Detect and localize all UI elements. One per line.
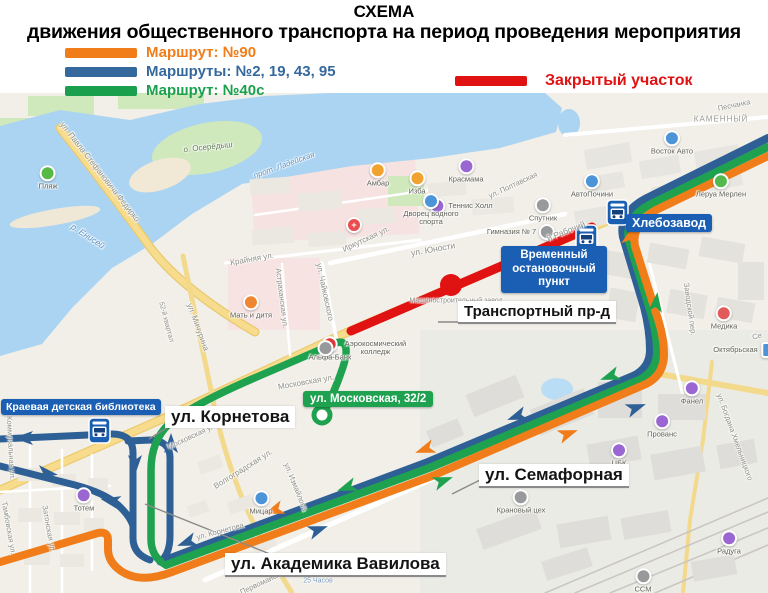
callout-temp-stop-line3: пункт — [503, 276, 605, 290]
callout-moskovskaya: ул. Московская, 32/2 — [303, 391, 433, 407]
legend-label-route-40c: Маршрут: №40с — [146, 82, 264, 99]
bus-stop-icon-hlebozavod — [607, 200, 628, 225]
page-title: СХЕМА — [0, 2, 768, 22]
bus-stop-icon-library — [89, 418, 110, 443]
callout-vavilova: ул. Академика Вавилова — [225, 553, 446, 577]
legend-routes: Маршрут: №90 Маршруты: №2, 19, 43, 95 Ма… — [65, 43, 336, 100]
legend-item-route-90: Маршрут: №90 — [65, 43, 336, 62]
legend-swatch-orange — [65, 48, 137, 58]
legend-swatch-blue — [65, 67, 137, 77]
callout-temp-stop-line1: Временный — [503, 249, 605, 263]
closed-point-icon — [440, 274, 462, 296]
callout-library: Краевая детская библиотека — [1, 399, 161, 415]
callout-semafornaya: ул. Семафорная — [479, 464, 629, 488]
transit-scheme: ПляжАмбарИзбаКрасмамаТеннис ХоллДворец в… — [0, 0, 768, 593]
terminus-icon — [314, 407, 330, 423]
callout-temp-stop: Временный остановочный пункт — [501, 246, 607, 293]
callout-hlebozavod: Хлебозавод — [626, 214, 712, 232]
legend-item-routes-blue: Маршруты: №2, 19, 43, 95 — [65, 62, 336, 81]
legend-swatch-green — [65, 86, 137, 96]
legend-swatch-red — [455, 76, 527, 86]
callout-kornetova: ул. Корнетова — [165, 406, 295, 428]
legend-item-route-40c: Маршрут: №40с — [65, 81, 336, 100]
legend-item-closed-section: Закрытый участок — [455, 72, 693, 90]
legend-label-closed-section: Закрытый участок — [545, 72, 693, 90]
callout-temp-stop-line2: остановочный — [503, 263, 605, 277]
page-subtitle: движения общественного транспорта на пер… — [0, 21, 768, 44]
legend-label-routes-blue: Маршруты: №2, 19, 43, 95 — [146, 63, 336, 80]
callout-transportny-proezd: Транспортный пр-д — [458, 301, 616, 324]
legend-label-route-90: Маршрут: №90 — [146, 44, 256, 61]
